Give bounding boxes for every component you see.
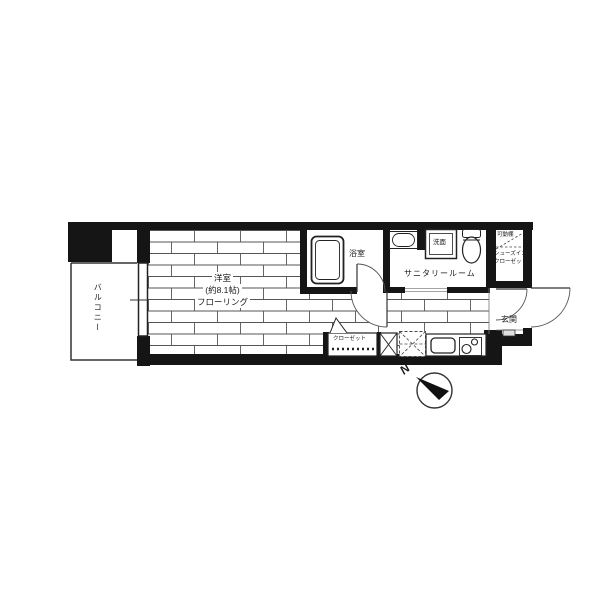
toilet-icon <box>463 237 481 263</box>
western-room-size: (約8.1帖) <box>203 284 241 296</box>
kitchen-sink-icon <box>431 338 455 353</box>
bathroom-label: 浴室 <box>349 249 365 258</box>
washbasin-label: 洗面 <box>433 239 446 246</box>
bath-door-swing-area <box>357 264 385 292</box>
wall-above-window <box>137 230 150 263</box>
entrance-label: 玄関 <box>501 315 517 324</box>
shoes-in-closet-label: シューズイン クローゼット <box>494 250 527 266</box>
balcony-railing <box>71 263 137 360</box>
wall-fixture-divider <box>417 230 426 250</box>
closet-label: クローゼット <box>333 336 366 342</box>
shoes-in-closet-line1: シューズイン <box>494 250 527 258</box>
shoes-in-closet-line2: クローゼット <box>494 258 527 266</box>
wall-room-bath <box>300 230 307 288</box>
western-room-floor-type: フローリング <box>195 296 250 308</box>
western-room-name: 洋室 <box>212 272 233 284</box>
wall-sanitary-bottom-right <box>447 287 490 293</box>
sanitary-room-label: サニタリールーム <box>404 269 476 278</box>
wall-sanitary-bottom-left <box>383 287 405 293</box>
laundry-pan-icon <box>390 232 418 249</box>
wall-top <box>68 222 533 230</box>
floorplan-canvas: バルコニー 洋室 (約8.1帖) フローリング 浴室 サニタリールーム 洗面 可… <box>0 0 614 615</box>
bathtub-icon <box>312 237 344 284</box>
toilet-tank-icon <box>463 230 481 238</box>
western-room-label: 洋室 (約8.1帖) フローリング <box>170 272 275 308</box>
balcony-label: バルコニー <box>93 283 102 333</box>
sanitary-threshold <box>405 289 447 292</box>
movable-shelf-label: 可動棚 <box>497 232 514 238</box>
wall-bath-bottom <box>300 287 357 294</box>
entrance-step <box>503 330 515 336</box>
front-door-arc <box>531 288 570 327</box>
wall-top-left-block <box>68 222 112 262</box>
